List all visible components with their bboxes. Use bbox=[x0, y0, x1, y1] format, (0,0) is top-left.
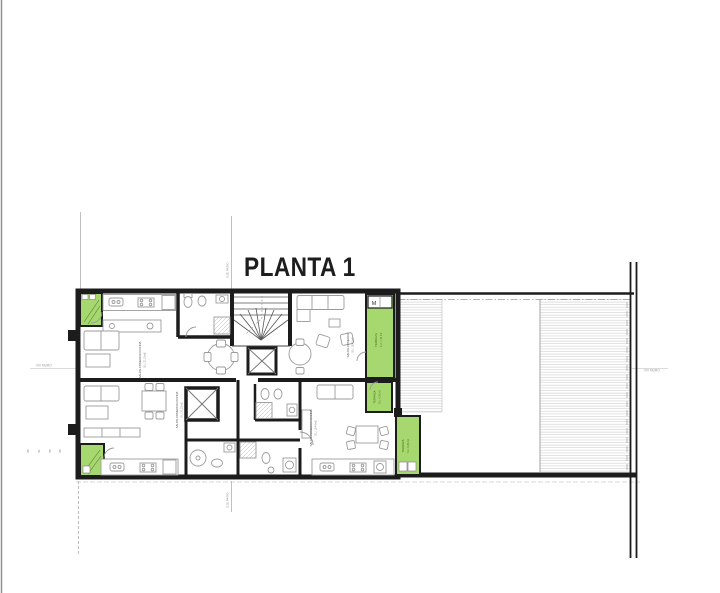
sofa bbox=[297, 296, 344, 310]
svg-text:S.U. 4,20 m2: S.U. 4,20 m2 bbox=[379, 389, 382, 404]
chair bbox=[145, 412, 153, 419]
chair bbox=[217, 367, 226, 374]
svg-text:S.U. 7,10 m2: S.U. 7,10 m2 bbox=[380, 332, 383, 347]
chair bbox=[296, 339, 304, 346]
side-table bbox=[86, 354, 110, 367]
chair bbox=[346, 426, 356, 436]
svg-text:01: 01 bbox=[37, 449, 41, 453]
ref-label-bottom: EJE PATIO bbox=[226, 492, 230, 508]
elevator-2 bbox=[186, 388, 218, 420]
svg-text:S.U. 19,40 m2: S.U. 19,40 m2 bbox=[352, 337, 355, 353]
chair bbox=[204, 353, 211, 362]
side-table bbox=[86, 406, 108, 419]
svg-text:TERRAZA: TERRAZA bbox=[401, 439, 405, 452]
chair bbox=[379, 426, 389, 436]
toilet bbox=[212, 459, 223, 467]
chair bbox=[217, 340, 226, 347]
dining-table bbox=[289, 343, 311, 365]
bidet bbox=[274, 389, 282, 399]
edge-label-right: VIV MURO bbox=[644, 369, 660, 373]
table bbox=[142, 391, 166, 411]
svg-text:SALON-COMEDOR-COCINA: SALON-COMEDOR-COCINA bbox=[175, 391, 179, 428]
laundry-closet: M bbox=[368, 296, 392, 308]
svg-text:PLANTA 1: PLANTA 1 bbox=[244, 252, 356, 282]
drawing-sheet: EJE PATIO EJE PATIO VIV MURO VIV MURO 05… bbox=[0, 0, 720, 593]
chair bbox=[346, 440, 355, 449]
ref-label-top: EJE PATIO bbox=[226, 262, 230, 278]
svg-text:S.U. 19,40 m2: S.U. 19,40 m2 bbox=[315, 420, 318, 436]
svg-text:S.U. 21,15 m2: S.U. 21,15 m2 bbox=[181, 402, 184, 418]
chair bbox=[156, 412, 164, 419]
fridge bbox=[162, 296, 175, 310]
sideboard bbox=[84, 428, 140, 437]
sink bbox=[320, 463, 334, 471]
svg-text:05: 05 bbox=[58, 449, 62, 453]
toilet bbox=[262, 453, 270, 464]
chair bbox=[379, 440, 388, 449]
closet-label: M bbox=[372, 301, 377, 307]
patio-decking-left bbox=[399, 299, 442, 412]
svg-text:TERRAZA: TERRAZA bbox=[374, 333, 378, 347]
dining-table bbox=[208, 344, 235, 371]
shower bbox=[256, 403, 272, 419]
elevator-1 bbox=[248, 348, 276, 374]
sofa bbox=[84, 331, 119, 350]
washbasin bbox=[268, 467, 274, 473]
shower bbox=[240, 442, 256, 458]
svg-text:05: 05 bbox=[26, 449, 30, 453]
svg-text:S.U. 6,35 m2: S.U. 6,35 m2 bbox=[407, 438, 410, 453]
svg-text:58: 58 bbox=[48, 449, 52, 453]
svg-text:S.U. 21,15 m2: S.U. 21,15 m2 bbox=[144, 352, 147, 368]
table bbox=[356, 426, 378, 443]
svg-text:SALON-COMEDOR: SALON-COMEDOR bbox=[346, 332, 350, 357]
toilet bbox=[184, 297, 192, 308]
svg-text:SALON-COMEDOR-COCINA: SALON-COMEDOR-COCINA bbox=[138, 341, 142, 378]
sink bbox=[109, 298, 123, 306]
sofa bbox=[84, 386, 119, 401]
coffee-table bbox=[329, 319, 340, 327]
sink bbox=[110, 463, 124, 471]
plan-title: PLANTA 1 bbox=[244, 252, 356, 282]
fridge bbox=[163, 460, 176, 474]
chair bbox=[231, 353, 238, 362]
bidet bbox=[198, 296, 206, 306]
dimension-micro-text: 05 01 58 05 bbox=[26, 449, 62, 453]
floor-plan-svg: EJE PATIO EJE PATIO VIV MURO VIV MURO 05… bbox=[0, 0, 720, 593]
chair bbox=[296, 368, 304, 375]
svg-text:TERRAZA: TERRAZA bbox=[373, 390, 377, 403]
shower bbox=[214, 317, 230, 334]
chair bbox=[156, 384, 164, 391]
edge-label-left: VIV MURO bbox=[36, 364, 52, 368]
chair bbox=[145, 384, 153, 391]
svg-text:SALON-COMEDOR-COCINA: SALON-COMEDOR-COCINA bbox=[309, 409, 313, 446]
chaise bbox=[297, 310, 310, 322]
patio bbox=[396, 262, 637, 558]
toilet bbox=[261, 389, 269, 400]
patio-decking-right bbox=[540, 299, 631, 472]
